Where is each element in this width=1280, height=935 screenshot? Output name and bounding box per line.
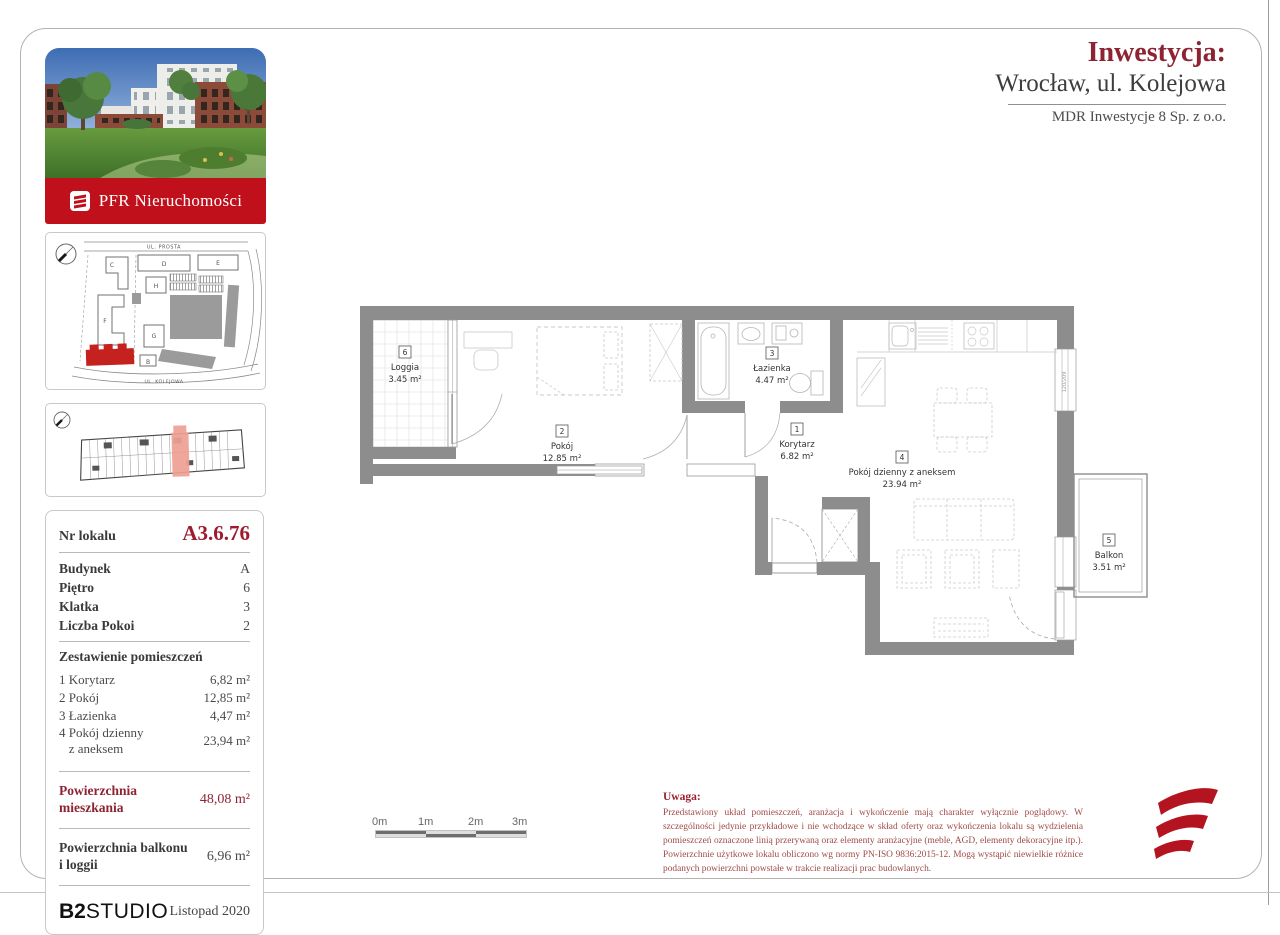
svg-text:4.47 m²: 4.47 m² bbox=[755, 376, 788, 386]
b2studio-logo: B2STUDIO bbox=[59, 900, 168, 924]
room-area: 23,94 m² bbox=[203, 732, 250, 750]
highlighted-unit bbox=[171, 425, 189, 476]
svg-text:H: H bbox=[154, 283, 159, 290]
disclaimer-body: Przedstawiony układ pomieszczeń, aranżac… bbox=[663, 806, 1083, 877]
room-row: 1 Korytarz 6,82 m² bbox=[59, 671, 250, 689]
svg-text:Łazienka: Łazienka bbox=[752, 364, 790, 374]
label-pokoj: 2 Pokój 12.85 m² bbox=[543, 425, 582, 464]
svg-text:E: E bbox=[216, 260, 220, 267]
field-row-klatka: Klatka 3 bbox=[59, 597, 250, 616]
unit-number-value: A3.6.76 bbox=[182, 521, 250, 546]
svg-text:12.85 m²: 12.85 m² bbox=[543, 454, 582, 464]
pfr-flag-icon bbox=[69, 190, 91, 212]
svg-text:1: 1 bbox=[795, 425, 800, 434]
floor-strip-plan bbox=[45, 403, 266, 497]
field-label: Piętro bbox=[59, 578, 94, 597]
svg-text:3.51 m²: 3.51 m² bbox=[1092, 563, 1125, 573]
svg-text:Pokój dzienny z aneksem: Pokój dzienny z aneksem bbox=[849, 467, 956, 478]
scale-label-3: 3m bbox=[512, 816, 527, 828]
entrance-door bbox=[772, 518, 817, 573]
label-pokoj-dzienny: 4 Pokój dzienny z aneksem 23.94 m² bbox=[849, 451, 956, 490]
field-value: 3 bbox=[243, 597, 250, 616]
divider bbox=[59, 552, 250, 553]
svg-text:Pokój: Pokój bbox=[551, 441, 573, 452]
walls bbox=[360, 306, 1074, 655]
interior-doors bbox=[643, 413, 780, 459]
disclaimer: Uwaga: Przedstawiony układ pomieszczeń, … bbox=[663, 791, 1083, 877]
floor-plan: 120/209 bbox=[352, 292, 1172, 682]
site-highlighted-building bbox=[86, 343, 135, 366]
compass-icon bbox=[56, 244, 76, 264]
window-dimension: 120/209 bbox=[1062, 372, 1068, 393]
loggia-window-door bbox=[448, 320, 502, 447]
apartment-area-value: 48,08 m² bbox=[200, 792, 250, 808]
field-label: Liczba Pokoi bbox=[59, 616, 134, 635]
compass-icon-small bbox=[54, 412, 70, 428]
label-balkon: 5 Balkon 3.51 m² bbox=[1092, 534, 1125, 573]
svg-text:Balkon: Balkon bbox=[1095, 551, 1124, 561]
field-value: 2 bbox=[243, 616, 250, 635]
unit-number-label: Nr lokalu bbox=[59, 529, 116, 545]
room-area: 12,85 m² bbox=[203, 689, 250, 707]
apartment-area-row: Powierzchniamieszkania 48,08 m² bbox=[59, 778, 250, 822]
building-strip bbox=[79, 424, 244, 480]
balcony-area-value: 6,96 m² bbox=[207, 849, 250, 865]
svg-text:4: 4 bbox=[900, 453, 905, 462]
pfr-logo-mark bbox=[1148, 782, 1222, 864]
room-area: 4,47 m² bbox=[210, 707, 250, 725]
header-divider bbox=[1008, 104, 1226, 105]
divider bbox=[59, 641, 250, 642]
rooms-heading: Zestawienie pomieszczeń bbox=[59, 649, 250, 665]
sidebar: PFR Nieruchomości UL. PROSTA UL. KOLEJOW… bbox=[45, 48, 266, 935]
field-value: 6 bbox=[243, 578, 250, 597]
field-label: Budynek bbox=[59, 559, 111, 578]
room-row: 4 Pokój dzienny z aneksem 23,94 m² bbox=[59, 725, 250, 757]
pfr-banner-label: PFR Nieruchomości bbox=[99, 191, 242, 211]
bathroom-fixtures bbox=[698, 323, 823, 399]
unit-number-row: Nr lokalu A3.6.76 bbox=[59, 521, 250, 546]
scale-label-0: 0m bbox=[372, 816, 387, 828]
scale-bar: 0m 1m 2m 3m bbox=[375, 816, 527, 838]
divider bbox=[59, 828, 250, 829]
svg-text:3: 3 bbox=[770, 349, 775, 358]
field-label: Klatka bbox=[59, 597, 99, 616]
apartment-area-label: Powierzchniamieszkania bbox=[59, 783, 137, 817]
room-row: 2 Pokój 12,85 m² bbox=[59, 689, 250, 707]
investment-city: Wrocław, ul. Kolejowa bbox=[995, 69, 1226, 99]
bedroom-furniture bbox=[464, 324, 682, 395]
scale-label-1: 1m bbox=[418, 816, 433, 828]
site-striped-blocks bbox=[170, 274, 223, 292]
svg-text:Korytarz: Korytarz bbox=[779, 440, 815, 450]
street-top-label: UL. PROSTA bbox=[147, 245, 181, 251]
svg-text:23.94 m²: 23.94 m² bbox=[883, 480, 922, 490]
svg-text:3.45 m²: 3.45 m² bbox=[388, 375, 421, 385]
issue-date: Listopad 2020 bbox=[170, 904, 251, 920]
field-row-budynek: Budynek A bbox=[59, 559, 250, 578]
svg-text:D: D bbox=[162, 261, 167, 268]
svg-text:6.82 m²: 6.82 m² bbox=[780, 452, 813, 462]
divider bbox=[59, 885, 250, 886]
street-bottom-label: UL. KOLEJOWA bbox=[144, 379, 183, 385]
svg-text:F: F bbox=[103, 318, 107, 325]
shaft bbox=[822, 509, 858, 562]
unit-info-panel: Nr lokalu A3.6.76 Budynek A Piętro 6 Kla… bbox=[45, 510, 264, 935]
pfr-banner: PFR Nieruchomości bbox=[45, 178, 266, 224]
svg-text:5: 5 bbox=[1107, 536, 1112, 545]
header: Inwestycja: Wrocław, ul. Kolejowa MDR In… bbox=[995, 38, 1226, 126]
svg-text:B: B bbox=[146, 359, 150, 366]
svg-text:6: 6 bbox=[403, 348, 408, 357]
kitchen-window: 120/209 bbox=[1055, 349, 1076, 411]
label-korytarz: 1 Korytarz 6.82 m² bbox=[779, 423, 815, 462]
scale-label-2: 2m bbox=[468, 816, 483, 828]
svg-text:G: G bbox=[152, 333, 157, 340]
divider bbox=[59, 771, 250, 772]
svg-text:2: 2 bbox=[560, 427, 565, 436]
room-area: 6,82 m² bbox=[210, 671, 250, 689]
investment-label: Inwestycja: bbox=[995, 38, 1226, 69]
site-map: UL. PROSTA UL. KOLEJOWA C D E H F G B bbox=[45, 232, 266, 390]
bedroom-window bbox=[557, 466, 642, 474]
unit-fields: Budynek A Piętro 6 Klatka 3 Liczba Pokoi… bbox=[59, 559, 250, 635]
living-furniture bbox=[897, 499, 1019, 637]
scale-bar-segments bbox=[375, 830, 527, 838]
label-lazienka: 3 Łazienka 4.47 m² bbox=[752, 347, 790, 386]
building-photo bbox=[45, 48, 266, 178]
field-row-liczba-pokoi: Liczba Pokoi 2 bbox=[59, 616, 250, 635]
svg-text:Loggia: Loggia bbox=[391, 363, 419, 373]
room-row: 3 Łazienka 4,47 m² bbox=[59, 707, 250, 725]
svg-text:C: C bbox=[110, 262, 114, 269]
balcony-area-label: Powierzchnia balkonui loggii bbox=[59, 840, 188, 874]
disclaimer-title: Uwaga: bbox=[663, 791, 1083, 803]
field-value: A bbox=[240, 559, 250, 578]
rooms-list: 1 Korytarz 6,82 m² 2 Pokój 12,85 m² 3 Ła… bbox=[59, 671, 250, 757]
studio-footer: B2STUDIO Listopad 2020 bbox=[59, 892, 250, 924]
field-row-pietro: Piętro 6 bbox=[59, 578, 250, 597]
page-edge-right bbox=[1268, 0, 1269, 905]
balcony-area-row: Powierzchnia balkonui loggii 6,96 m² bbox=[59, 835, 250, 879]
developer-name: MDR Inwestycje 8 Sp. z o.o. bbox=[995, 109, 1226, 126]
dining-set bbox=[934, 388, 992, 452]
